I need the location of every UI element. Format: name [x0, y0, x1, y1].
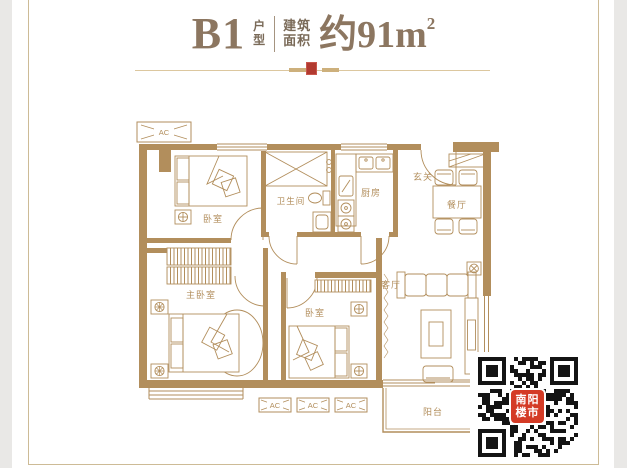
label-foyer: 玄关 [413, 171, 433, 182]
page-margin-left [0, 0, 12, 468]
title-separator [274, 16, 275, 52]
area-prefix-2: 面积 [283, 34, 311, 49]
qr-seal: 南阳 楼市 [511, 390, 544, 423]
floor-plan: AC AC AC AC [131, 114, 503, 451]
divider-accent-left [289, 68, 306, 72]
label-dining: 餐厅 [447, 199, 467, 210]
unit-type-char-2: 型 [253, 34, 266, 48]
label-kitchen: 厨房 [361, 187, 381, 198]
qr-seal-line2: 楼市 [516, 407, 540, 420]
label-balcony: 阳台 [423, 406, 443, 417]
ac-label-top: AC [159, 128, 170, 137]
ac-label-1: AC [270, 401, 281, 410]
bedroom2-furniture [289, 280, 371, 378]
ac-label-2: AC [308, 401, 319, 410]
unit-type-name: B1 [192, 12, 245, 56]
label-living: 客厅 [381, 279, 401, 290]
label-bedroom1: 卧室 [203, 213, 223, 224]
area-prefix-1: 建筑 [283, 19, 311, 34]
bathroom-fixtures [265, 152, 331, 232]
shoe-cabinet [449, 154, 485, 167]
unit-type-char-1: 户 [253, 20, 266, 34]
ac-label-3: AC [346, 401, 357, 410]
page-title: B1 户 型 建筑 面积 约91m2 [0, 12, 627, 56]
qr-code: 南阳 楼市 [470, 352, 585, 462]
label-master: 主卧室 [186, 289, 216, 300]
divider-accent-right [322, 68, 339, 72]
area-value: 约91m2 [319, 15, 435, 54]
frame-line-right [598, 0, 599, 464]
coffee-table [421, 310, 451, 358]
floorplan-card: B1 户 型 建筑 面积 约91m2 [0, 0, 627, 468]
page-margin-right [614, 0, 627, 468]
label-bathroom: 卫生间 [277, 196, 306, 206]
label-bedroom2: 卧室 [305, 307, 325, 318]
frame-line-bottom [28, 464, 599, 465]
unit-type-suffix: 户 型 [253, 20, 266, 48]
qr-seal-line1: 南阳 [516, 394, 540, 407]
sofa [405, 274, 426, 296]
area-prefix: 建筑 面积 [283, 19, 311, 49]
frame-line-left [28, 0, 29, 464]
master-furniture [151, 248, 263, 378]
divider-red-seal [306, 62, 317, 75]
